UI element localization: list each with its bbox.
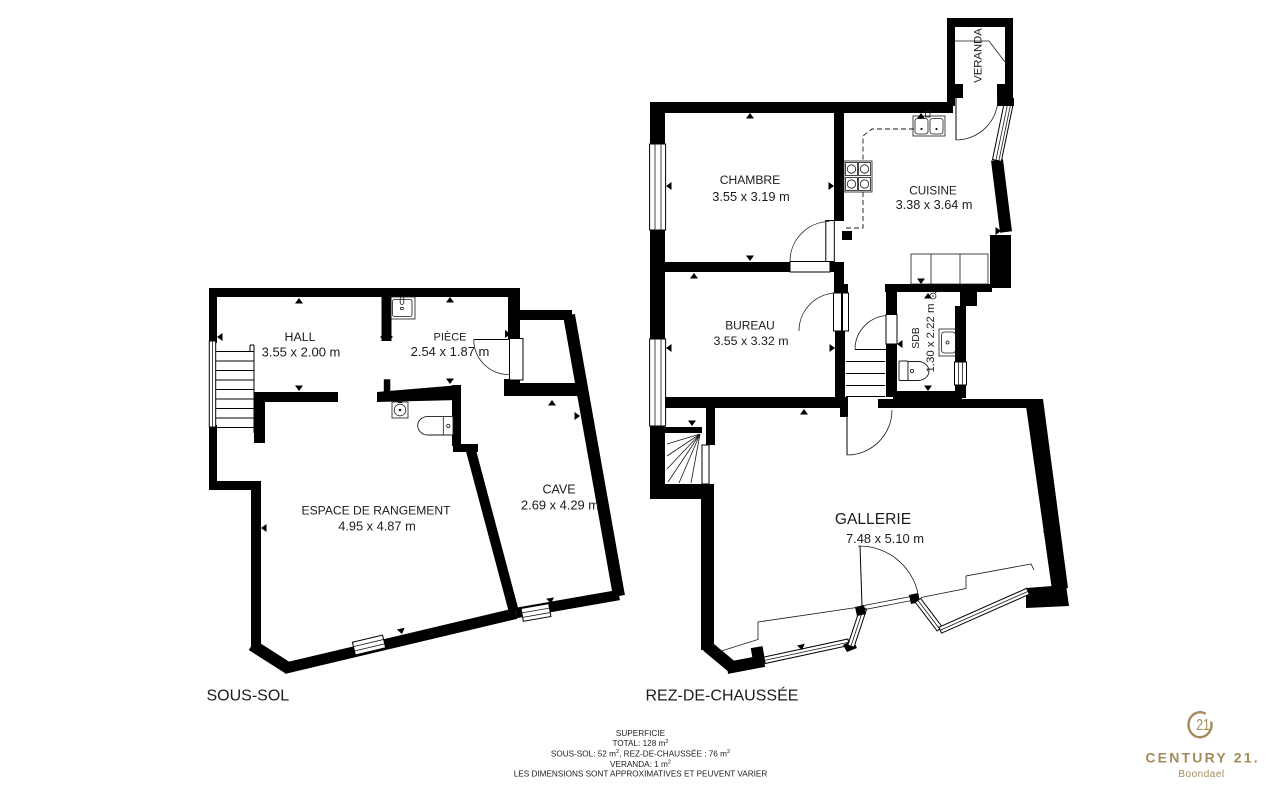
svg-text:CUISINE: CUISINE [909,185,957,198]
svg-text:BUREAU: BUREAU [725,319,775,333]
svg-text:CHAMBRE: CHAMBRE [720,173,780,187]
svg-text:7.48 x 5.10 m: 7.48 x 5.10 m [846,531,924,546]
svg-text:VERANDA: VERANDA [973,28,985,83]
svg-text:HALL: HALL [285,330,316,344]
svg-text:GALLERIE: GALLERIE [835,511,911,528]
svg-text:21: 21 [1196,717,1210,734]
svg-text:REZ-DE-CHAUSSÉE: REZ-DE-CHAUSSÉE [646,686,799,705]
svg-text:SDB: SDB [911,327,922,348]
svg-text:3.55 x 2.00 m: 3.55 x 2.00 m [262,344,341,359]
svg-text:Boondael: Boondael [1178,769,1224,780]
svg-text:CAVE: CAVE [542,483,575,497]
svg-text:2.69 x 4.29 m: 2.69 x 4.29 m [521,498,599,513]
svg-text:LES DIMENSIONS SONT APPROXIMAT: LES DIMENSIONS SONT APPROXIMATIVES ET PE… [514,770,768,779]
svg-text:ESPACE DE RANGEMENT: ESPACE DE RANGEMENT [302,504,452,518]
svg-text:PIÈCE: PIÈCE [433,330,466,343]
svg-text:3.55 x 3.32 m: 3.55 x 3.32 m [713,334,788,348]
svg-text:4.95 x 4.87 m: 4.95 x 4.87 m [338,519,416,534]
svg-text:SOUS-SOL: SOUS-SOL [207,688,290,705]
svg-text:1.30 x 2.22 m: 1.30 x 2.22 m [925,303,937,372]
svg-text:3.38 x 3.64 m: 3.38 x 3.64 m [896,198,973,212]
svg-text:TOTAL: 128 m2: TOTAL: 128 m2 [612,739,668,748]
svg-text:SUPERFICIE: SUPERFICIE [616,729,666,738]
svg-text:CENTURY 21.: CENTURY 21. [1145,750,1257,766]
svg-text:SOUS-SOL: 52 m2, REZ-DE-CHAUSS: SOUS-SOL: 52 m2, REZ-DE-CHAUSSÉE : 76 m2 [551,748,730,758]
svg-text:2.54 x 1.87 m: 2.54 x 1.87 m [411,344,490,359]
svg-text:VERANDA: 1 m2: VERANDA: 1 m2 [610,760,671,769]
svg-text:3.55 x 3.19 m: 3.55 x 3.19 m [712,189,790,204]
